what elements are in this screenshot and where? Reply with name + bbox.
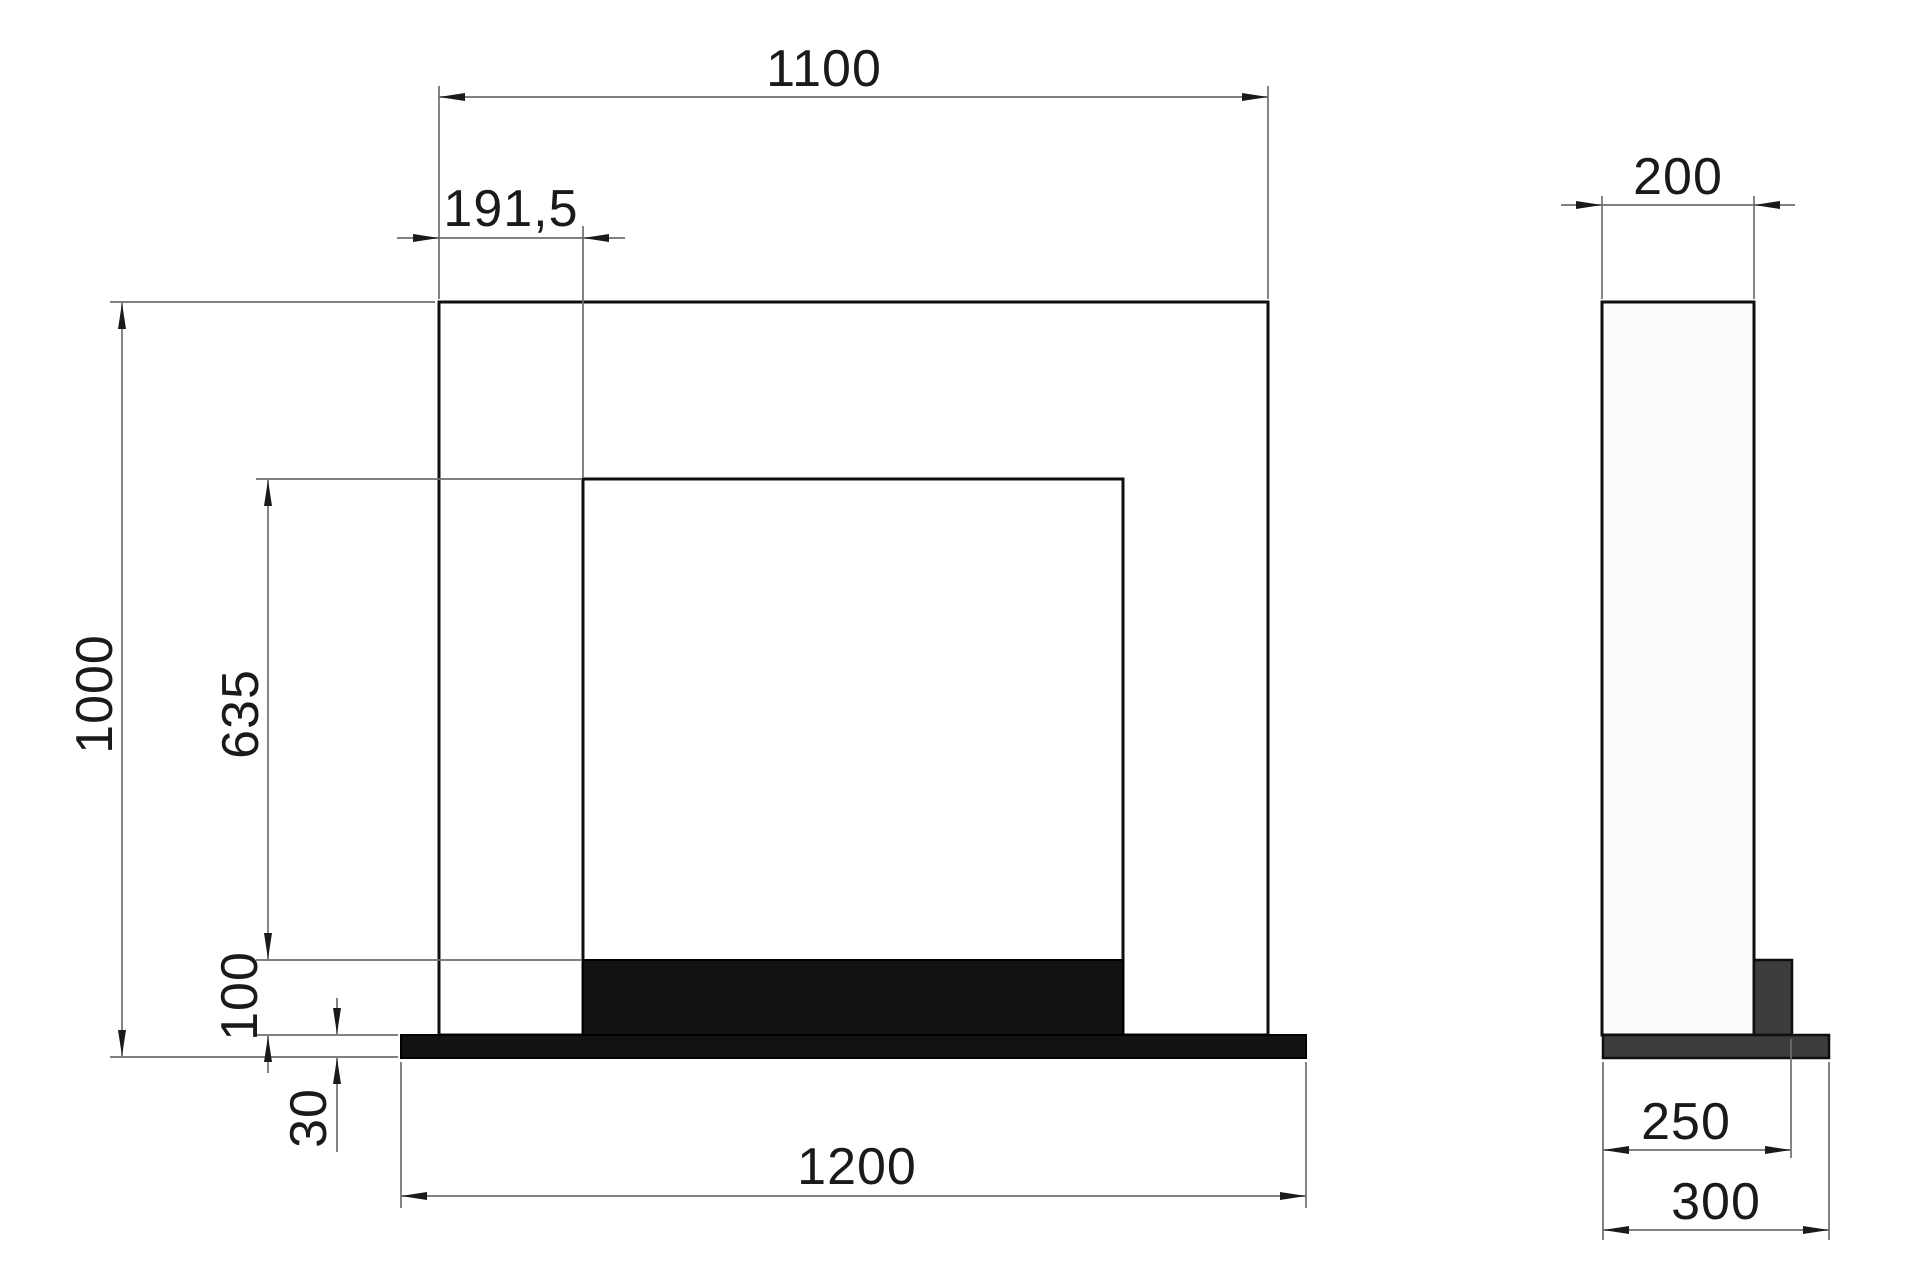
dim-label-opening-height: 635 (212, 669, 270, 759)
technical-drawing-canvas: 1100 191,5 1000 635 100 30 1200 (0, 0, 1920, 1280)
dim-base-width: 1200 (401, 1062, 1306, 1208)
side-hearth-block (1754, 960, 1792, 1035)
dim-label-base-width: 1200 (797, 1138, 917, 1196)
front-hearth-slab (583, 960, 1123, 1035)
dim-label-leg-width: 191,5 (443, 180, 578, 238)
dim-label-base-depth: 300 (1671, 1173, 1761, 1231)
dim-top-width: 1100 (439, 40, 1268, 299)
technical-drawing-page: 1100 191,5 1000 635 100 30 1200 (0, 0, 1920, 1280)
front-surround-shape (439, 302, 1268, 1035)
dim-opening-height: 635 (212, 479, 581, 960)
dim-base-depth: 300 (1603, 1062, 1829, 1240)
front-view (401, 302, 1306, 1058)
dim-label-base-thickness: 30 (280, 1088, 338, 1148)
dim-label-top-width: 1100 (766, 40, 882, 98)
dim-leg-width: 191,5 (397, 180, 625, 477)
side-base-plate (1603, 1035, 1829, 1058)
dim-label-total-height: 1000 (66, 634, 124, 754)
side-body-shape (1602, 302, 1754, 1035)
dim-label-hearth-thickness: 100 (211, 951, 269, 1041)
side-view (1602, 302, 1829, 1058)
dim-label-hearth-depth: 250 (1641, 1093, 1731, 1151)
dim-label-body-depth: 200 (1633, 148, 1723, 206)
front-base-plate (401, 1035, 1306, 1058)
dim-hearth-thickness: 100 (211, 951, 398, 1073)
dim-base-thickness: 30 (280, 998, 338, 1152)
dim-body-depth: 200 (1561, 148, 1795, 299)
